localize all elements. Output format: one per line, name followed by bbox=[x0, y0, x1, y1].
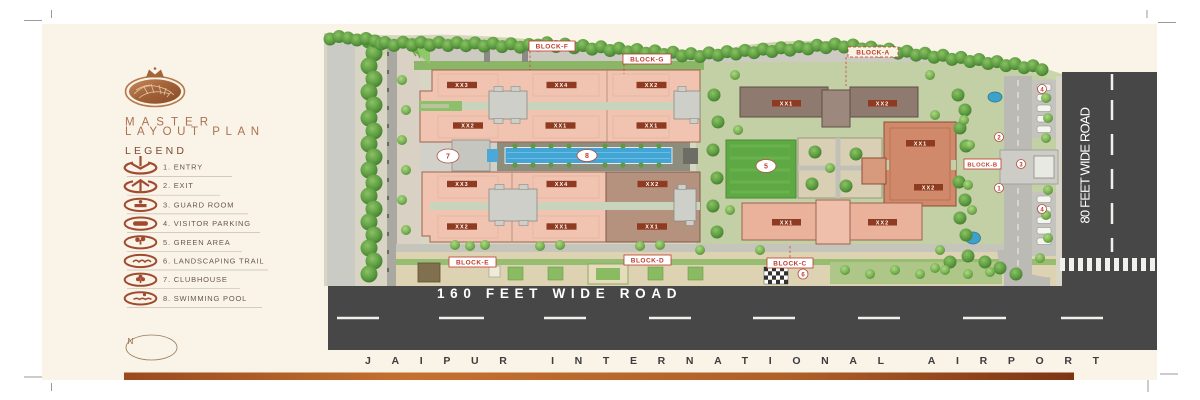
svg-text:XX2: XX2 bbox=[876, 221, 889, 227]
svg-text:7. CLUBHOUSE: 7. CLUBHOUSE bbox=[163, 275, 228, 284]
svg-text:BLOCK-G: BLOCK-G bbox=[630, 57, 664, 64]
svg-text:XX1: XX1 bbox=[645, 224, 658, 230]
svg-text:BLOCK-D: BLOCK-D bbox=[631, 258, 664, 265]
svg-text:8: 8 bbox=[585, 153, 589, 160]
svg-text:N: N bbox=[128, 337, 134, 346]
svg-text:XX4: XX4 bbox=[555, 83, 568, 89]
svg-text:XX1: XX1 bbox=[645, 123, 658, 129]
svg-text:2. EXIT: 2. EXIT bbox=[163, 181, 194, 190]
svg-text:XX2: XX2 bbox=[455, 224, 468, 230]
svg-text:80 FEET WIDE ROAD: 80 FEET WIDE ROAD bbox=[1078, 107, 1093, 224]
svg-text:LAYOUT PLAN: LAYOUT PLAN bbox=[125, 126, 262, 138]
svg-text:3. GUARD ROOM: 3. GUARD ROOM bbox=[163, 200, 234, 209]
svg-text:160 FEET WIDE ROAD: 160 FEET WIDE ROAD bbox=[437, 286, 681, 301]
svg-text:XX2: XX2 bbox=[645, 83, 658, 89]
svg-text:1. ENTRY: 1. ENTRY bbox=[163, 163, 203, 172]
svg-text:5. GREEN AREA: 5. GREEN AREA bbox=[163, 238, 231, 247]
svg-text:XX2: XX2 bbox=[646, 182, 659, 188]
svg-text:LEGEND: LEGEND bbox=[125, 145, 186, 157]
svg-text:XX1: XX1 bbox=[555, 224, 568, 230]
svg-text:7: 7 bbox=[446, 154, 450, 161]
svg-text:XX1: XX1 bbox=[780, 102, 793, 108]
svg-text:XX2: XX2 bbox=[461, 123, 474, 129]
svg-text:XX2: XX2 bbox=[876, 102, 889, 108]
svg-text:XX2: XX2 bbox=[922, 186, 935, 192]
svg-text:XX3: XX3 bbox=[455, 182, 468, 188]
svg-text:BLOCK-C: BLOCK-C bbox=[773, 261, 806, 268]
svg-text:XX4: XX4 bbox=[555, 182, 568, 188]
svg-text:XX1: XX1 bbox=[914, 142, 927, 148]
svg-text:8. SWIMMING POOL: 8. SWIMMING POOL bbox=[163, 294, 247, 303]
svg-text:BLOCK-F: BLOCK-F bbox=[536, 44, 569, 51]
svg-text:XX3: XX3 bbox=[455, 83, 468, 89]
svg-text:BLOCK-E: BLOCK-E bbox=[456, 260, 489, 267]
svg-text:6. LANDSCAPING TRAIL: 6. LANDSCAPING TRAIL bbox=[163, 257, 264, 266]
svg-text:BLOCK-B: BLOCK-B bbox=[967, 163, 997, 169]
svg-text:4. VISITOR PARKING: 4. VISITOR PARKING bbox=[163, 219, 251, 228]
svg-text:5: 5 bbox=[764, 164, 768, 171]
svg-text:XX1: XX1 bbox=[780, 221, 793, 227]
svg-text:XX1: XX1 bbox=[554, 123, 567, 129]
svg-text:BLOCK-A: BLOCK-A bbox=[856, 50, 889, 57]
